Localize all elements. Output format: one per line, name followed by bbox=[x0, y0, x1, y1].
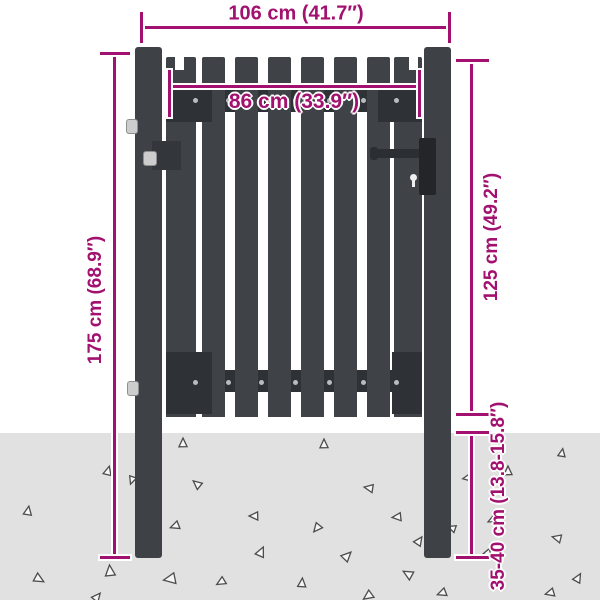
fence-gate-diagram: 106 cm (41.7″) 86 cm (33.9″) 175 cm (68.… bbox=[0, 0, 600, 600]
dim-total-width-cap-left bbox=[140, 12, 143, 43]
dim-gate-height-line bbox=[470, 59, 473, 416]
rivet bbox=[361, 98, 366, 103]
dim-total-height-line bbox=[113, 52, 116, 558]
dim-post-depth-label: 35-40 cm (13.8-15.8″) bbox=[488, 402, 510, 591]
latch-handle-knob bbox=[370, 147, 378, 160]
top-rail-left-bracket bbox=[166, 85, 212, 122]
dim-post-depth-line bbox=[470, 432, 473, 558]
right-post bbox=[424, 47, 451, 558]
slat-notch bbox=[409, 57, 418, 70]
rivet bbox=[193, 98, 198, 103]
rivet bbox=[293, 380, 298, 385]
rivet bbox=[193, 380, 198, 385]
dim-total-width-line bbox=[140, 26, 451, 29]
dim-total-height-label: 175 cm (68.9″) bbox=[85, 236, 107, 364]
rivet bbox=[394, 380, 399, 385]
rivet bbox=[394, 98, 399, 103]
rivet bbox=[361, 380, 366, 385]
rivet bbox=[226, 380, 231, 385]
dim-total-width-cap-right bbox=[448, 12, 451, 43]
dim-gate-height-cap-top bbox=[456, 59, 489, 62]
ground bbox=[0, 433, 600, 600]
dim-inner-width-label: 86 cm (33.9″) bbox=[229, 90, 359, 114]
dim-post-depth-cap-top bbox=[456, 431, 489, 434]
dim-inner-width-cap-left bbox=[168, 70, 171, 117]
dim-total-height-cap-top bbox=[100, 52, 130, 55]
dim-total-width-label: 106 cm (41.7″) bbox=[228, 3, 363, 26]
dim-inner-width-line bbox=[168, 85, 421, 88]
left-post bbox=[135, 47, 162, 558]
lock-body bbox=[419, 138, 436, 195]
rivet bbox=[259, 380, 264, 385]
hinge-pin-mid-icon bbox=[143, 151, 157, 166]
dim-gate-height-cap-bottom bbox=[456, 413, 489, 416]
hinge-pin-bottom-icon bbox=[127, 381, 139, 396]
dim-inner-width-cap-right bbox=[418, 70, 421, 117]
hinge-pin-top-icon bbox=[126, 119, 138, 134]
bottom-rail-left-bracket bbox=[166, 352, 212, 414]
rivet bbox=[327, 380, 332, 385]
top-rail-right-bracket bbox=[378, 85, 422, 122]
keyhole-stem-icon bbox=[412, 180, 415, 187]
dim-gate-height-label: 125 cm (49.2″) bbox=[481, 173, 503, 301]
dim-post-depth-cap-bottom bbox=[456, 556, 489, 559]
latch-handle bbox=[371, 149, 422, 158]
slat-notch bbox=[175, 57, 184, 70]
dim-total-height-cap-bottom bbox=[100, 556, 130, 559]
